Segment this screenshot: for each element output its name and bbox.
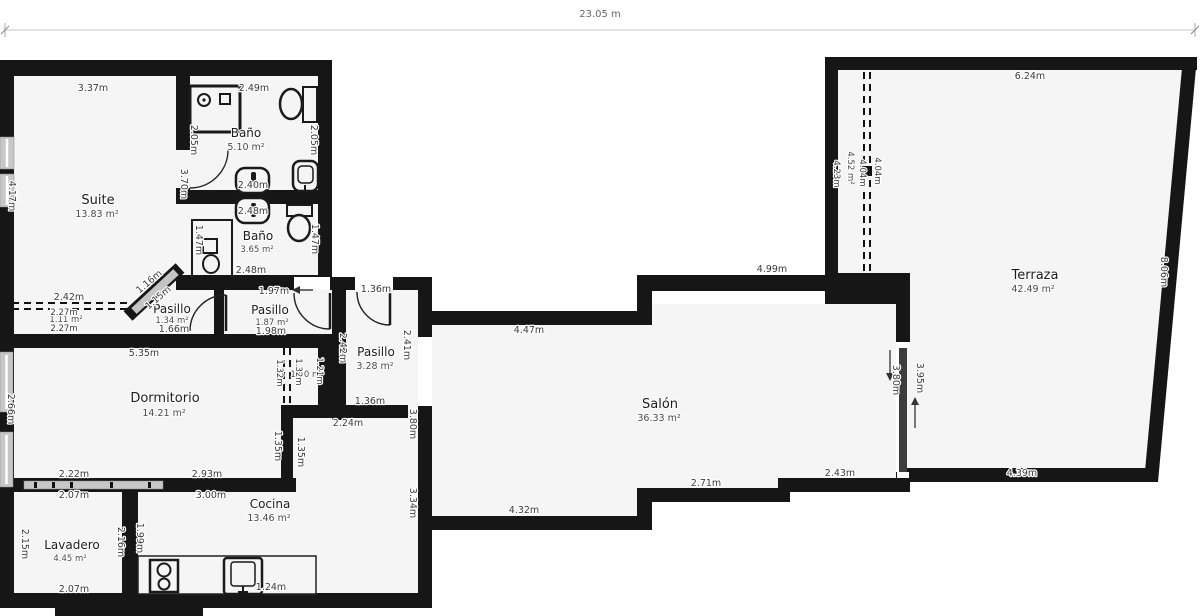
dim-dorm-right-b: 1.35m bbox=[295, 437, 306, 467]
bano2-area: 3.65 m² bbox=[240, 245, 273, 255]
terraza-name: Terraza bbox=[1011, 268, 1059, 283]
dim-bano1-left: 2.05m bbox=[188, 125, 199, 155]
dim-terraza-top: 6.24m bbox=[1015, 71, 1045, 82]
dim-cocina-right: 3.34m bbox=[407, 488, 418, 518]
bano1-name: Baño bbox=[231, 126, 262, 140]
lavadero-window-band bbox=[24, 481, 163, 489]
dim-salon-top-a: 4.47m bbox=[514, 325, 544, 336]
pasillo2-name: Pasillo bbox=[251, 303, 289, 317]
dim-bano2-left: 1.47m bbox=[193, 225, 204, 255]
cocina-area: 13.46 m² bbox=[247, 513, 290, 524]
toilet-icon bbox=[303, 87, 317, 122]
dim-salon-door-wall: 3.95m bbox=[914, 363, 925, 393]
suite-name: Suite bbox=[81, 193, 114, 208]
cocina-name: Cocina bbox=[250, 497, 291, 511]
dim-opening-suite: 2.42m bbox=[54, 292, 84, 303]
pasillo3-area: 3.28 m² bbox=[356, 361, 393, 372]
dim-lav-bottom: 2.07m bbox=[59, 584, 89, 595]
dim-suite-left: 4.17m bbox=[6, 181, 17, 211]
dim-pasillo1-bottom: 1.66m bbox=[159, 324, 189, 335]
dim-closet2-left-a: 1.32m bbox=[274, 359, 284, 386]
dim-salon-bottom-b: 2.71m bbox=[691, 478, 721, 489]
dim-closet2-right: 1.21m bbox=[314, 357, 324, 384]
dim-bano1-tub: 2.40m bbox=[238, 180, 268, 191]
dim-closet2-left-b: 1.32m bbox=[293, 358, 303, 385]
floor-plan: 23.05 m bbox=[0, 0, 1200, 616]
dim-salon-bottom-c: 2.43m bbox=[825, 468, 855, 479]
dim-terraza-bottom: 4.39m bbox=[1007, 468, 1037, 479]
dim-lav-right: 2.16m bbox=[115, 527, 126, 557]
salon-name: Salón bbox=[642, 397, 678, 412]
dim-shaft-top: 2.24m bbox=[333, 418, 363, 429]
dim-bano2-tub-top: 2.48m bbox=[238, 206, 268, 217]
dim-bano2-bottom: 2.48m bbox=[236, 265, 266, 276]
dim-strip-dash-a: 4.04m bbox=[857, 159, 867, 186]
lavadero-name: Lavadero bbox=[44, 538, 100, 552]
dormitorio-area: 14.21 m² bbox=[142, 408, 185, 419]
dim-lav-top: 2.07m bbox=[59, 490, 89, 501]
dim-bano2-right: 1.47m bbox=[309, 224, 320, 254]
bano2-name: Baño bbox=[243, 229, 274, 243]
bano1-area: 5.10 m² bbox=[227, 142, 264, 153]
dim-pasillo3-right: 2.41m bbox=[401, 330, 412, 360]
dim-hall-top: 1.97m bbox=[259, 286, 289, 297]
total-width-label: 23.05 m bbox=[579, 9, 621, 20]
dim-salon-wall-left: 3.80m bbox=[407, 409, 418, 439]
terraza-area: 42.49 m² bbox=[1011, 284, 1054, 295]
dim-pasillo3-left: 2.42m bbox=[337, 333, 348, 363]
dim-dorm-right-a: 1.35m bbox=[272, 431, 283, 461]
dim-salon-door: 3.80m bbox=[890, 365, 901, 395]
dim-bano1-right: 2.05m bbox=[308, 125, 319, 155]
dim-cocina-sink: 1.24m bbox=[256, 582, 286, 593]
dim-suite-bano-wall: 3.70m bbox=[178, 169, 189, 199]
dim-pasillo2-bottom: 1.98m bbox=[256, 326, 286, 337]
dim-lav-left: 2.15m bbox=[19, 529, 30, 559]
dim-cocina-top: 3.00m bbox=[196, 490, 226, 501]
overall-ruler: 23.05 m bbox=[1, 9, 1199, 37]
dim-cocina-left: 1.99m bbox=[134, 523, 145, 553]
dim-dorm-left: 2.66m bbox=[5, 394, 16, 424]
dim-closet1-top: 2.27m bbox=[50, 308, 77, 318]
strip-area: 4.52 m² bbox=[845, 151, 855, 184]
dim-strip-left: 4.23m bbox=[831, 160, 841, 187]
dim-dorm-bottom-b: 2.93m bbox=[192, 469, 222, 480]
dim-suite-top: 3.37m bbox=[78, 83, 108, 94]
dim-pasillo3-top: 1.36m bbox=[361, 284, 391, 295]
dim-salon-bottom-a: 4.32m bbox=[509, 505, 539, 516]
dim-dorm-top: 5.35m bbox=[129, 348, 159, 359]
salon-area: 36.33 m² bbox=[637, 413, 680, 424]
dim-pasillo3-bottom: 1.36m bbox=[355, 396, 385, 407]
suite-area: 13.83 m² bbox=[75, 209, 118, 220]
pasillo3-name: Pasillo bbox=[357, 345, 395, 359]
dim-salon-top-b: 4.99m bbox=[757, 264, 787, 275]
dim-dorm-bottom-a: 2.22m bbox=[59, 469, 89, 480]
lavadero-area: 4.45 m² bbox=[53, 554, 86, 564]
dim-strip-dash-b: 4.04m bbox=[872, 157, 882, 184]
dim-terraza-right: 8.06m bbox=[1158, 257, 1169, 287]
dormitorio-name: Dormitorio bbox=[130, 391, 199, 406]
dim-bano1-top: 2.49m bbox=[239, 83, 269, 94]
floor-plan-canvas: 23.05 m bbox=[0, 0, 1200, 616]
dim-closet1-bottom: 2.27m bbox=[50, 324, 77, 334]
